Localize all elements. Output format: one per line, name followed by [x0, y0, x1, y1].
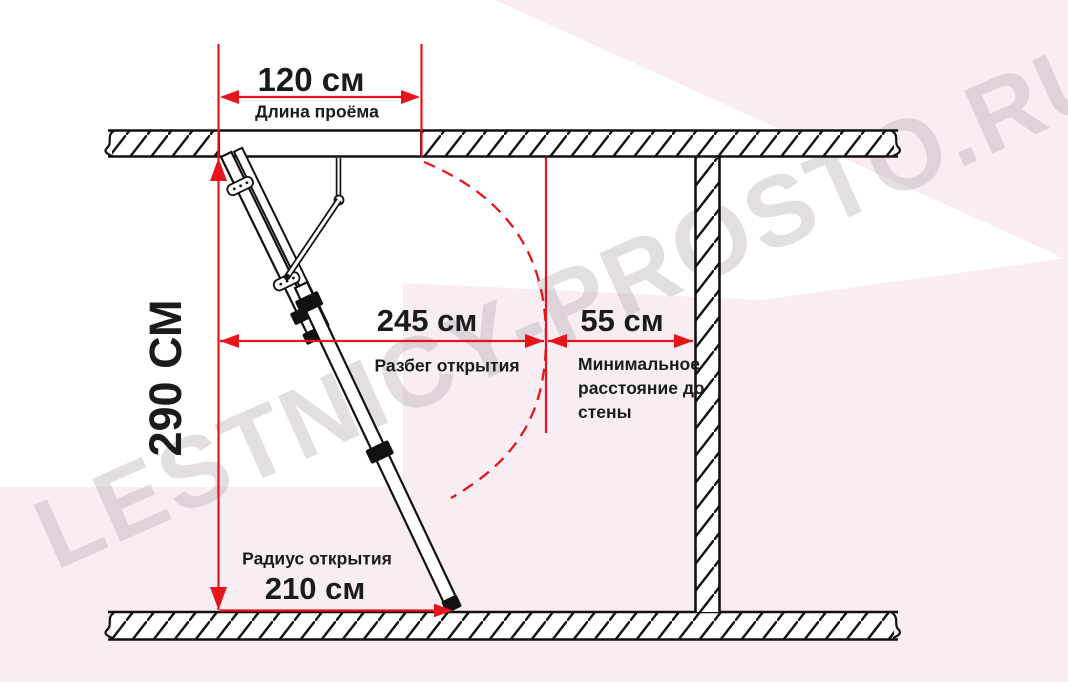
floor — [106, 612, 900, 640]
dim-opening-radius-label: Радиус открытия — [242, 549, 392, 570]
ceiling — [106, 130, 900, 157]
dim-opening-run-value: 245 см — [377, 303, 478, 339]
dim-opening-length-value: 120 см — [258, 61, 365, 99]
dim-wall-distance-label: Минимальное расстояние до стены — [578, 352, 728, 424]
dim-opening-length-label: Длина проёма — [255, 102, 379, 123]
dim-wall-distance-value: 55 см — [580, 303, 663, 339]
attic-ladder-dimension-diagram: LESTNICY-PROSTO.RU — [0, 0, 1068, 682]
dim-opening-radius-value: 210 см — [265, 571, 366, 607]
dim-room-height-value: 290 СМ — [140, 300, 192, 457]
dim-opening-run-label: Разбег открытия — [374, 356, 519, 377]
